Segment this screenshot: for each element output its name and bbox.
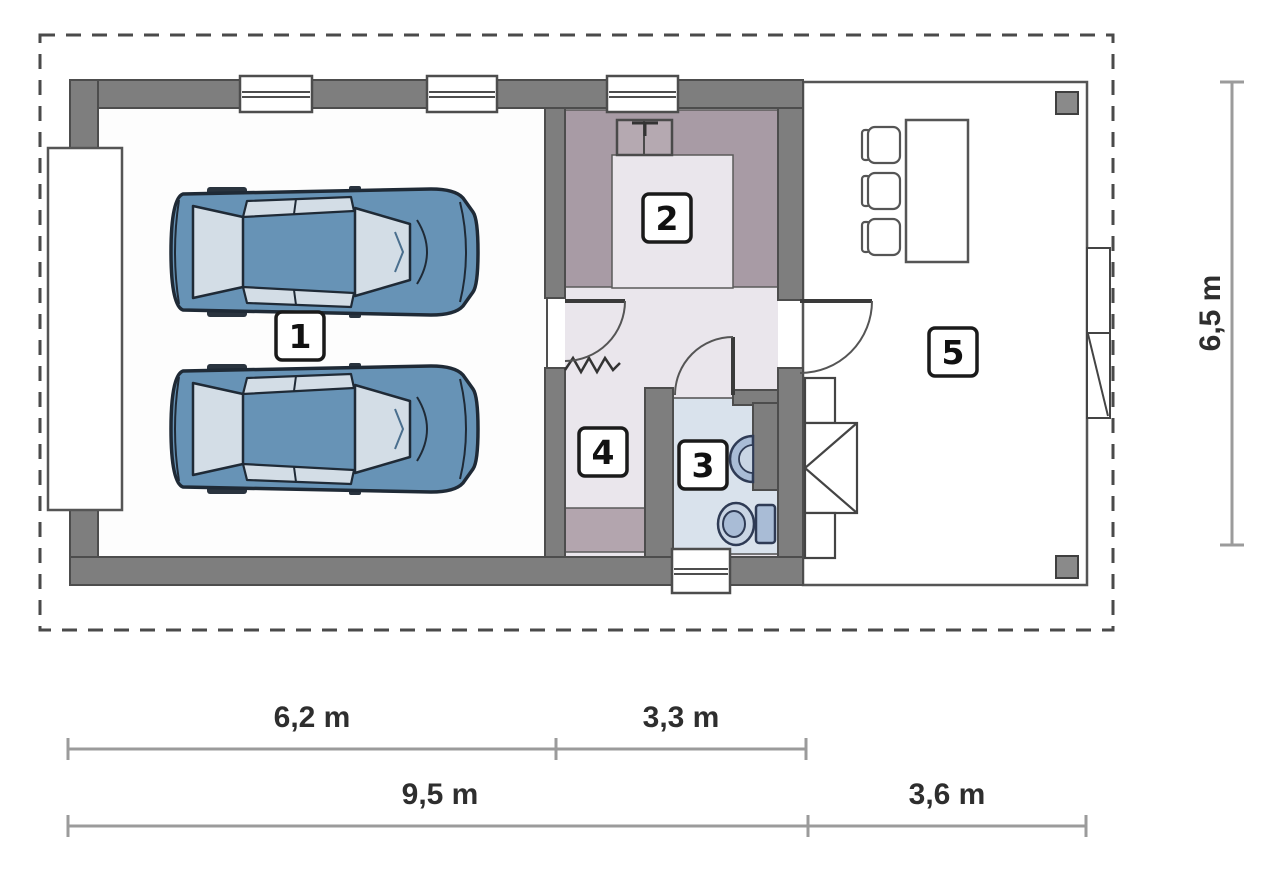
- wall-left-lower: [70, 508, 98, 557]
- room-number-4: 4: [592, 433, 615, 472]
- room-number-5: 5: [942, 333, 965, 372]
- wall-garage-hall-upper: [545, 108, 565, 298]
- water-heater-fixture: [617, 120, 672, 155]
- floor-plan-page: 1 2 3 4 5 6,2 m 3,3 m: [0, 0, 1280, 873]
- wall-garage-hall-lower: [545, 368, 565, 557]
- wall-right-lower: [778, 368, 803, 557]
- floor-plan-drawing: 1 2 3 4 5 6,2 m 3,3 m: [0, 0, 1280, 873]
- wall-right-upper: [778, 108, 803, 300]
- dining-table: [906, 120, 968, 262]
- room4-counter: [565, 508, 650, 552]
- dim-garage-width: 6,2 m: [274, 701, 351, 734]
- room-number-3: 3: [692, 446, 715, 485]
- room-label-2: 2: [643, 194, 691, 242]
- wall-left-upper: [70, 80, 98, 150]
- room-label-4: 4: [579, 428, 627, 476]
- terrace-post-top: [1056, 92, 1078, 114]
- exterior-steps: [1087, 248, 1110, 418]
- garage-door: [48, 148, 122, 510]
- car-1: [171, 186, 478, 318]
- room-number-1: 1: [289, 317, 312, 356]
- window-top-3: [607, 76, 678, 112]
- wall-room4-bath: [645, 388, 673, 557]
- wall-bath-right: [753, 403, 778, 490]
- window-top-2: [427, 76, 497, 112]
- room-label-5: 5: [929, 328, 977, 376]
- window-top-1: [240, 76, 312, 112]
- terrace-post-bottom: [1056, 556, 1078, 578]
- window-bathroom: [672, 549, 730, 593]
- dim-terrace-width: 3,6 m: [909, 778, 986, 811]
- car-2: [171, 363, 478, 495]
- room-number-2: 2: [656, 199, 679, 238]
- room-label-1: 1: [276, 312, 324, 360]
- dim-building-width: 9,5 m: [402, 778, 479, 811]
- toilet-icon: [718, 503, 775, 545]
- room-label-3: 3: [679, 441, 727, 489]
- dim-building-depth: 6,5 m: [1194, 275, 1227, 352]
- dim-annex-width: 3,3 m: [643, 701, 720, 734]
